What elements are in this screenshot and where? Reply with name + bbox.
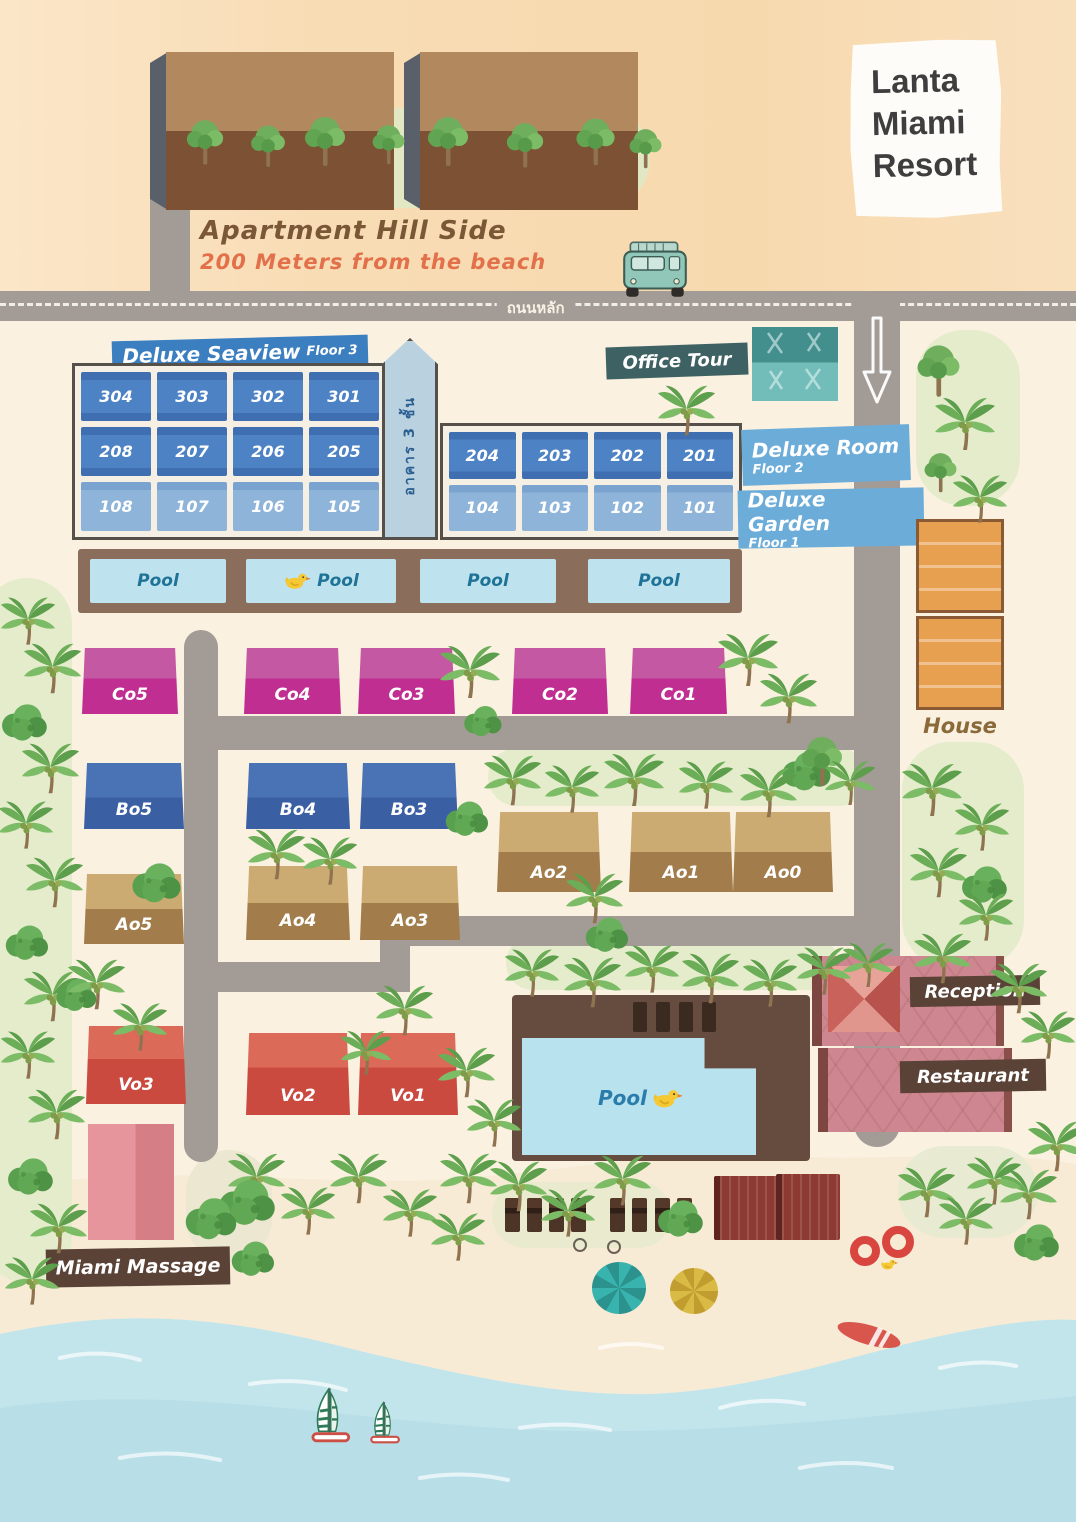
room-cell: 303 xyxy=(157,372,227,421)
cottage: Co4 xyxy=(244,648,341,714)
room-cell: 103 xyxy=(522,485,589,532)
office-roof-marks xyxy=(752,327,838,401)
cottage: Ao4 xyxy=(246,866,350,940)
pool-label: Pool xyxy=(137,571,179,591)
pool: Pool xyxy=(588,559,730,603)
main-road: ถนนหลัก xyxy=(0,291,1076,321)
hillside-distance: 200 Meters from the beach xyxy=(200,250,546,274)
pool-label: Pool xyxy=(638,571,680,591)
apartment-building xyxy=(404,52,638,210)
cottage: Co3 xyxy=(358,648,455,714)
cottage: Ao3 xyxy=(360,866,460,940)
entrance-arrow-icon xyxy=(862,316,892,404)
lawn-patch xyxy=(488,748,868,806)
room-cell: 104 xyxy=(449,485,516,532)
resort-title-line: Resort xyxy=(872,142,1003,187)
room-cell: 301 xyxy=(309,372,379,421)
cottage: Bo4 xyxy=(246,763,350,829)
seaview-tower: อาคาร 3 ชั้น xyxy=(382,338,438,540)
hillside-title: Apartment Hill Side xyxy=(200,216,507,246)
sailboat-icon xyxy=(364,1400,408,1448)
beach-lounger xyxy=(549,1198,564,1232)
room-cell: 207 xyxy=(157,427,227,476)
deluxe-garden-banner: Deluxe Garden Floor 1 xyxy=(738,487,925,548)
room-cell: 203 xyxy=(522,432,589,479)
pool: Pool xyxy=(90,559,226,603)
inner-road-vertical xyxy=(184,630,218,1162)
cottage: Co5 xyxy=(82,648,178,714)
room-cell: 202 xyxy=(594,432,661,479)
office-tour-label: Office Tour xyxy=(622,349,732,374)
seaview-right-wing: 204 203 202 201 104 103 102 101 xyxy=(440,423,742,540)
reception-roof-pyramid xyxy=(828,966,900,1032)
beach-hut xyxy=(714,1176,778,1240)
cottage: Vo2 xyxy=(246,1033,350,1115)
lawn-patch xyxy=(898,1146,1038,1238)
deluxe-seaview-floor: Floor 3 xyxy=(306,342,358,358)
road-name-label: ถนนหลัก xyxy=(497,296,575,320)
cottage: Ao0 xyxy=(733,812,833,892)
pool-lounger xyxy=(702,1002,716,1032)
tower-thai-label: อาคาร 3 ชั้น xyxy=(399,396,421,496)
lawn-patch xyxy=(186,1150,272,1262)
room-cell: 107 xyxy=(157,482,227,531)
apartment-roof xyxy=(420,52,638,210)
pool: Pool xyxy=(246,559,396,603)
room-cell: 101 xyxy=(667,485,734,532)
pool-label: Pool xyxy=(317,571,359,591)
pool: Pool xyxy=(420,559,556,603)
room-cell: 206 xyxy=(233,427,303,476)
room-cell: 106 xyxy=(233,482,303,531)
beach-lounger xyxy=(632,1198,647,1232)
pool-lounger xyxy=(633,1002,647,1032)
swim-ring-icon xyxy=(850,1236,880,1266)
deluxe-room-floor: Floor 2 xyxy=(752,460,804,477)
beach-lounger xyxy=(571,1198,586,1232)
room-cell: 204 xyxy=(449,432,516,479)
lawn-patch xyxy=(902,742,1024,968)
beach-lounger xyxy=(505,1198,520,1232)
lawn-patch xyxy=(916,330,1020,506)
inner-road-horizontal-b xyxy=(184,962,410,992)
pool-strip: Pool Pool Pool Pool xyxy=(78,549,742,613)
cottage: Co1 xyxy=(630,648,727,714)
sailboat-icon xyxy=(300,1386,364,1448)
room-cell: 201 xyxy=(667,432,734,479)
lawn-patch xyxy=(0,578,72,1283)
room-cell: 302 xyxy=(233,372,303,421)
beach-hut xyxy=(776,1174,840,1240)
room-cell: 208 xyxy=(81,427,151,476)
pool-lounger xyxy=(679,1002,693,1032)
resort-title-line: Miami xyxy=(871,100,1002,145)
pool-lounger xyxy=(656,1002,670,1032)
apartment-building xyxy=(150,52,394,210)
swim-ring-icon xyxy=(882,1226,914,1258)
restaurant-label: Restaurant xyxy=(917,1065,1029,1088)
apartment-roof xyxy=(166,52,394,210)
resort-title-line: Lanta xyxy=(871,58,1002,103)
deluxe-room-label: Deluxe Room xyxy=(751,433,899,462)
reception-banner: Reception xyxy=(910,975,1041,1007)
massage-building xyxy=(88,1124,174,1240)
building-shadow-edge xyxy=(818,1048,828,1132)
massage-banner: Miami Massage xyxy=(46,1246,231,1287)
massage-label: Miami Massage xyxy=(55,1255,220,1280)
room-cell: 102 xyxy=(594,485,661,532)
beach-lounger xyxy=(610,1198,625,1232)
deluxe-garden-label: Deluxe Garden xyxy=(747,485,914,536)
resort-title-card: Lanta Miami Resort xyxy=(848,38,1004,219)
beach-lounger xyxy=(655,1198,670,1232)
beach-lounger xyxy=(677,1198,692,1232)
cottage: Ao1 xyxy=(629,812,733,892)
deluxe-garden-floor: Floor 1 xyxy=(748,535,799,551)
cottage: Vo1 xyxy=(358,1033,458,1115)
room-cell: 105 xyxy=(309,482,379,531)
pool-label: Pool xyxy=(467,571,509,591)
main-pool-label: Pool xyxy=(598,1086,647,1110)
cottage: Ao5 xyxy=(84,874,184,944)
main-pool-label-group: Pool xyxy=(598,1086,683,1110)
beach-table-icon xyxy=(573,1238,587,1252)
duck-icon xyxy=(651,1087,683,1110)
room-cell: 108 xyxy=(81,482,151,531)
house-label: House xyxy=(916,714,1004,738)
house-building xyxy=(916,519,1004,613)
restaurant-banner: Restaurant xyxy=(900,1059,1047,1094)
duck-icon xyxy=(283,571,311,591)
room-cell: 304 xyxy=(81,372,151,421)
cottage: Vo3 xyxy=(86,1026,186,1104)
cottage: Bo5 xyxy=(84,763,184,829)
ocean xyxy=(0,1288,1076,1522)
beach-table-icon xyxy=(607,1240,621,1254)
reception-label: Reception xyxy=(924,980,1025,1003)
building-shadow-edge xyxy=(812,956,822,1046)
office-building xyxy=(752,327,838,401)
room-cell: 205 xyxy=(309,427,379,476)
seaview-left-wing: 304 303 302 301 208 207 206 205 108 107 … xyxy=(72,363,388,540)
deluxe-room-banner: Deluxe Room Floor 2 xyxy=(741,424,911,486)
inner-road-horizontal-a xyxy=(184,716,900,750)
office-tour-banner: Office Tour xyxy=(605,343,748,380)
duck-icon xyxy=(880,1258,898,1271)
house-building xyxy=(916,616,1004,710)
car-icon xyxy=(616,240,694,298)
cottage: Co2 xyxy=(512,648,608,714)
beach-lounger xyxy=(527,1198,542,1232)
cottage: Bo3 xyxy=(360,763,458,829)
cottage: Ao2 xyxy=(497,812,601,892)
resort-map: ถนนหลัก Apartment Hill Side 200 Meters f… xyxy=(0,0,1076,1522)
